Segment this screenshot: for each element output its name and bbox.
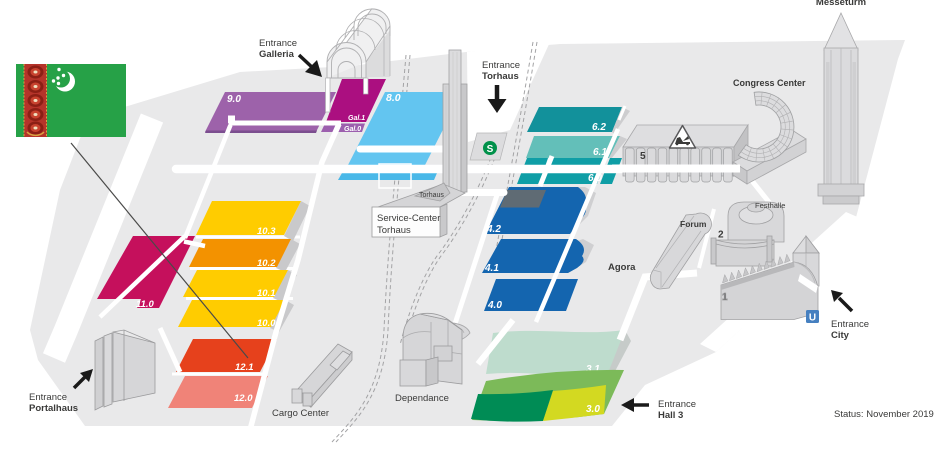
svg-text:Hall 3: Hall 3 — [658, 410, 683, 421]
svg-text:Festhalle: Festhalle — [755, 201, 785, 210]
svg-text:9.0: 9.0 — [227, 94, 241, 105]
svg-text:Messeturm: Messeturm — [816, 0, 866, 8]
svg-text:8.0: 8.0 — [386, 92, 401, 104]
svg-text:Entrance: Entrance — [482, 60, 520, 71]
svg-text:Entrance: Entrance — [259, 38, 297, 49]
svg-text:U: U — [809, 313, 816, 324]
svg-text:3.0: 3.0 — [586, 404, 600, 415]
svg-text:Portalhaus: Portalhaus — [29, 403, 78, 414]
svg-text:City: City — [831, 330, 850, 341]
svg-text:Congress Center: Congress Center — [733, 78, 806, 88]
svg-text:Entrance: Entrance — [29, 392, 67, 403]
svg-text:1: 1 — [722, 292, 728, 303]
svg-text:6.2: 6.2 — [592, 122, 606, 133]
svg-text:Torhaus: Torhaus — [377, 225, 411, 236]
svg-text:Dependance: Dependance — [395, 393, 449, 404]
svg-text:Torhaus: Torhaus — [419, 192, 444, 199]
svg-text:Service-Center: Service-Center — [377, 213, 440, 224]
svg-text:Status: November 2019: Status: November 2019 — [834, 409, 934, 420]
svg-text:10.3: 10.3 — [257, 226, 276, 237]
svg-text:4.1: 4.1 — [484, 263, 499, 274]
svg-text:2: 2 — [718, 230, 724, 241]
svg-text:Entrance: Entrance — [831, 319, 869, 330]
svg-text:10.1: 10.1 — [257, 288, 276, 299]
svg-text:11.0: 11.0 — [136, 299, 155, 310]
svg-text:Entrance: Entrance — [658, 399, 696, 410]
svg-text:12.0: 12.0 — [234, 393, 253, 404]
svg-text:10.0: 10.0 — [257, 318, 276, 329]
svg-text:Galleria: Galleria — [259, 49, 295, 60]
svg-text:5: 5 — [640, 151, 646, 162]
svg-text:10.2: 10.2 — [257, 258, 276, 269]
svg-text:Torhaus: Torhaus — [482, 71, 519, 82]
svg-text:Forum: Forum — [680, 219, 707, 229]
svg-text:Agora: Agora — [608, 262, 636, 273]
svg-text:Gal.0: Gal.0 — [344, 126, 361, 133]
svg-text:S: S — [487, 144, 494, 155]
svg-text:4.0: 4.0 — [487, 300, 502, 311]
svg-text:Gal.1: Gal.1 — [348, 115, 365, 122]
svg-text:Cargo Center: Cargo Center — [272, 408, 329, 419]
svg-text:12.1: 12.1 — [235, 362, 254, 373]
